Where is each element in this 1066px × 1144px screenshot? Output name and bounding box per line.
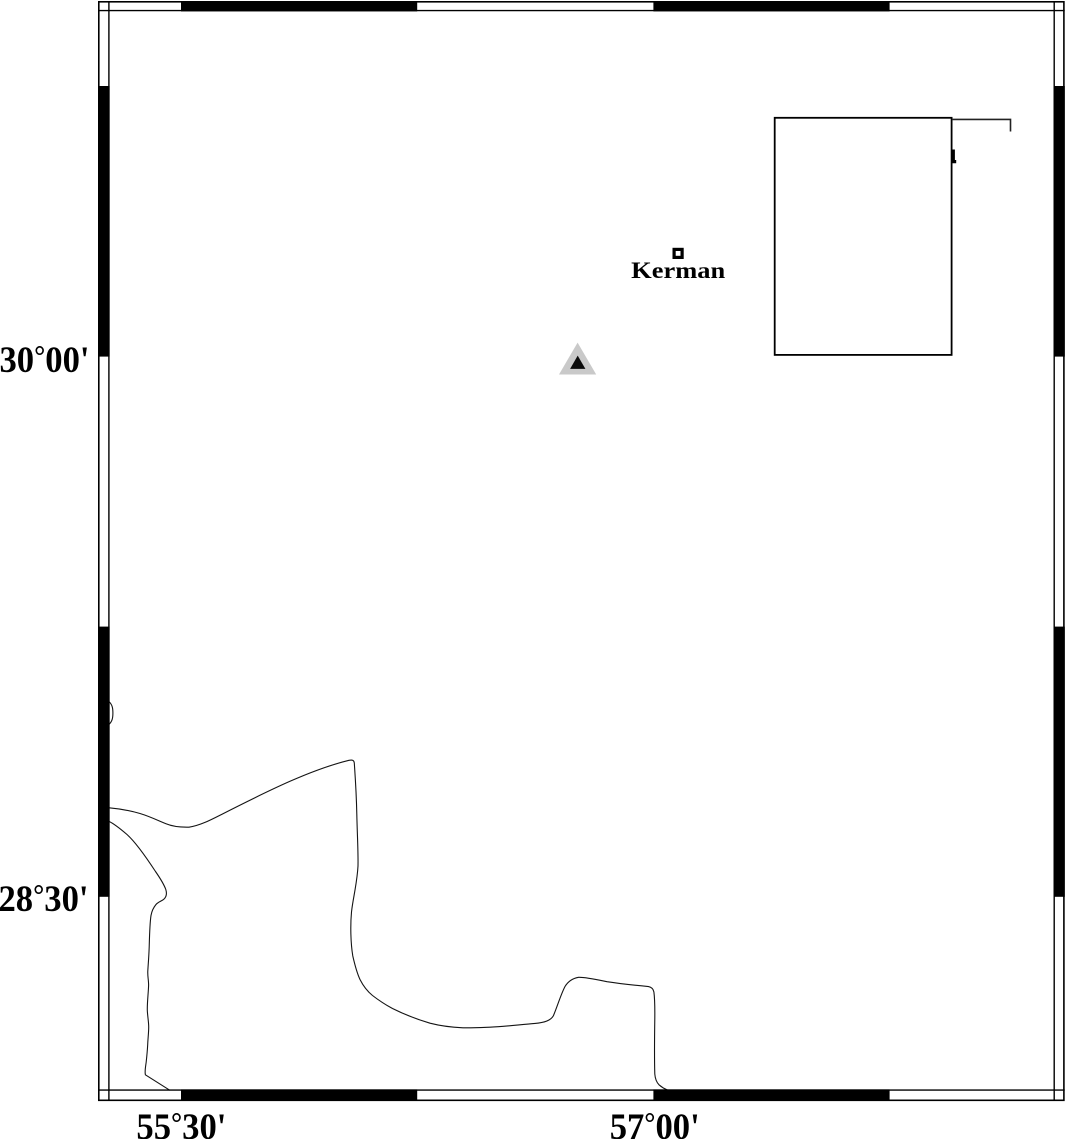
svg-text:57°00': 57°00' [610, 1107, 700, 1139]
svg-text:28°30': 28°30' [0, 879, 89, 920]
svg-text:Kerman: Kerman [631, 258, 725, 283]
svg-text:30°00': 30°00' [0, 340, 90, 381]
svg-text:55°30': 55°30' [136, 1107, 226, 1139]
